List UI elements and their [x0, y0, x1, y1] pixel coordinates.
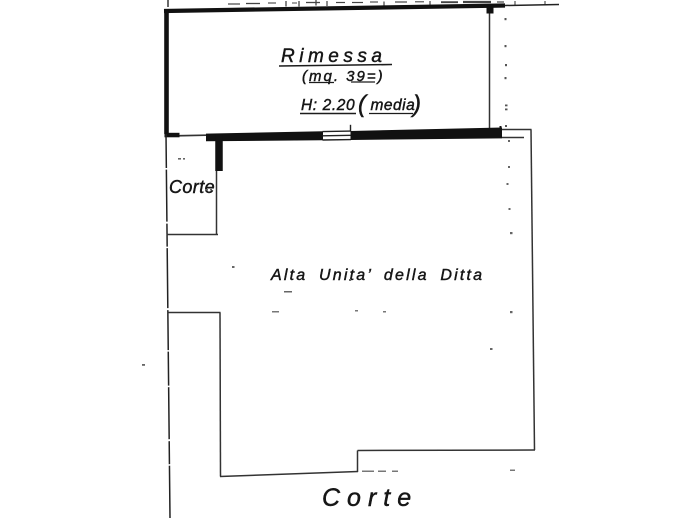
svg-text:Alta Unita’ della Ditta: Alta Unita’ della Ditta — [270, 267, 484, 284]
svg-text:media: media — [371, 97, 416, 114]
svg-text:H: 2.20: H: 2.20 — [301, 97, 355, 114]
svg-text:Corte: Corte — [322, 484, 418, 512]
svg-text:Rimessa: Rimessa — [281, 46, 386, 67]
svg-text:Corte: Corte — [169, 177, 215, 197]
